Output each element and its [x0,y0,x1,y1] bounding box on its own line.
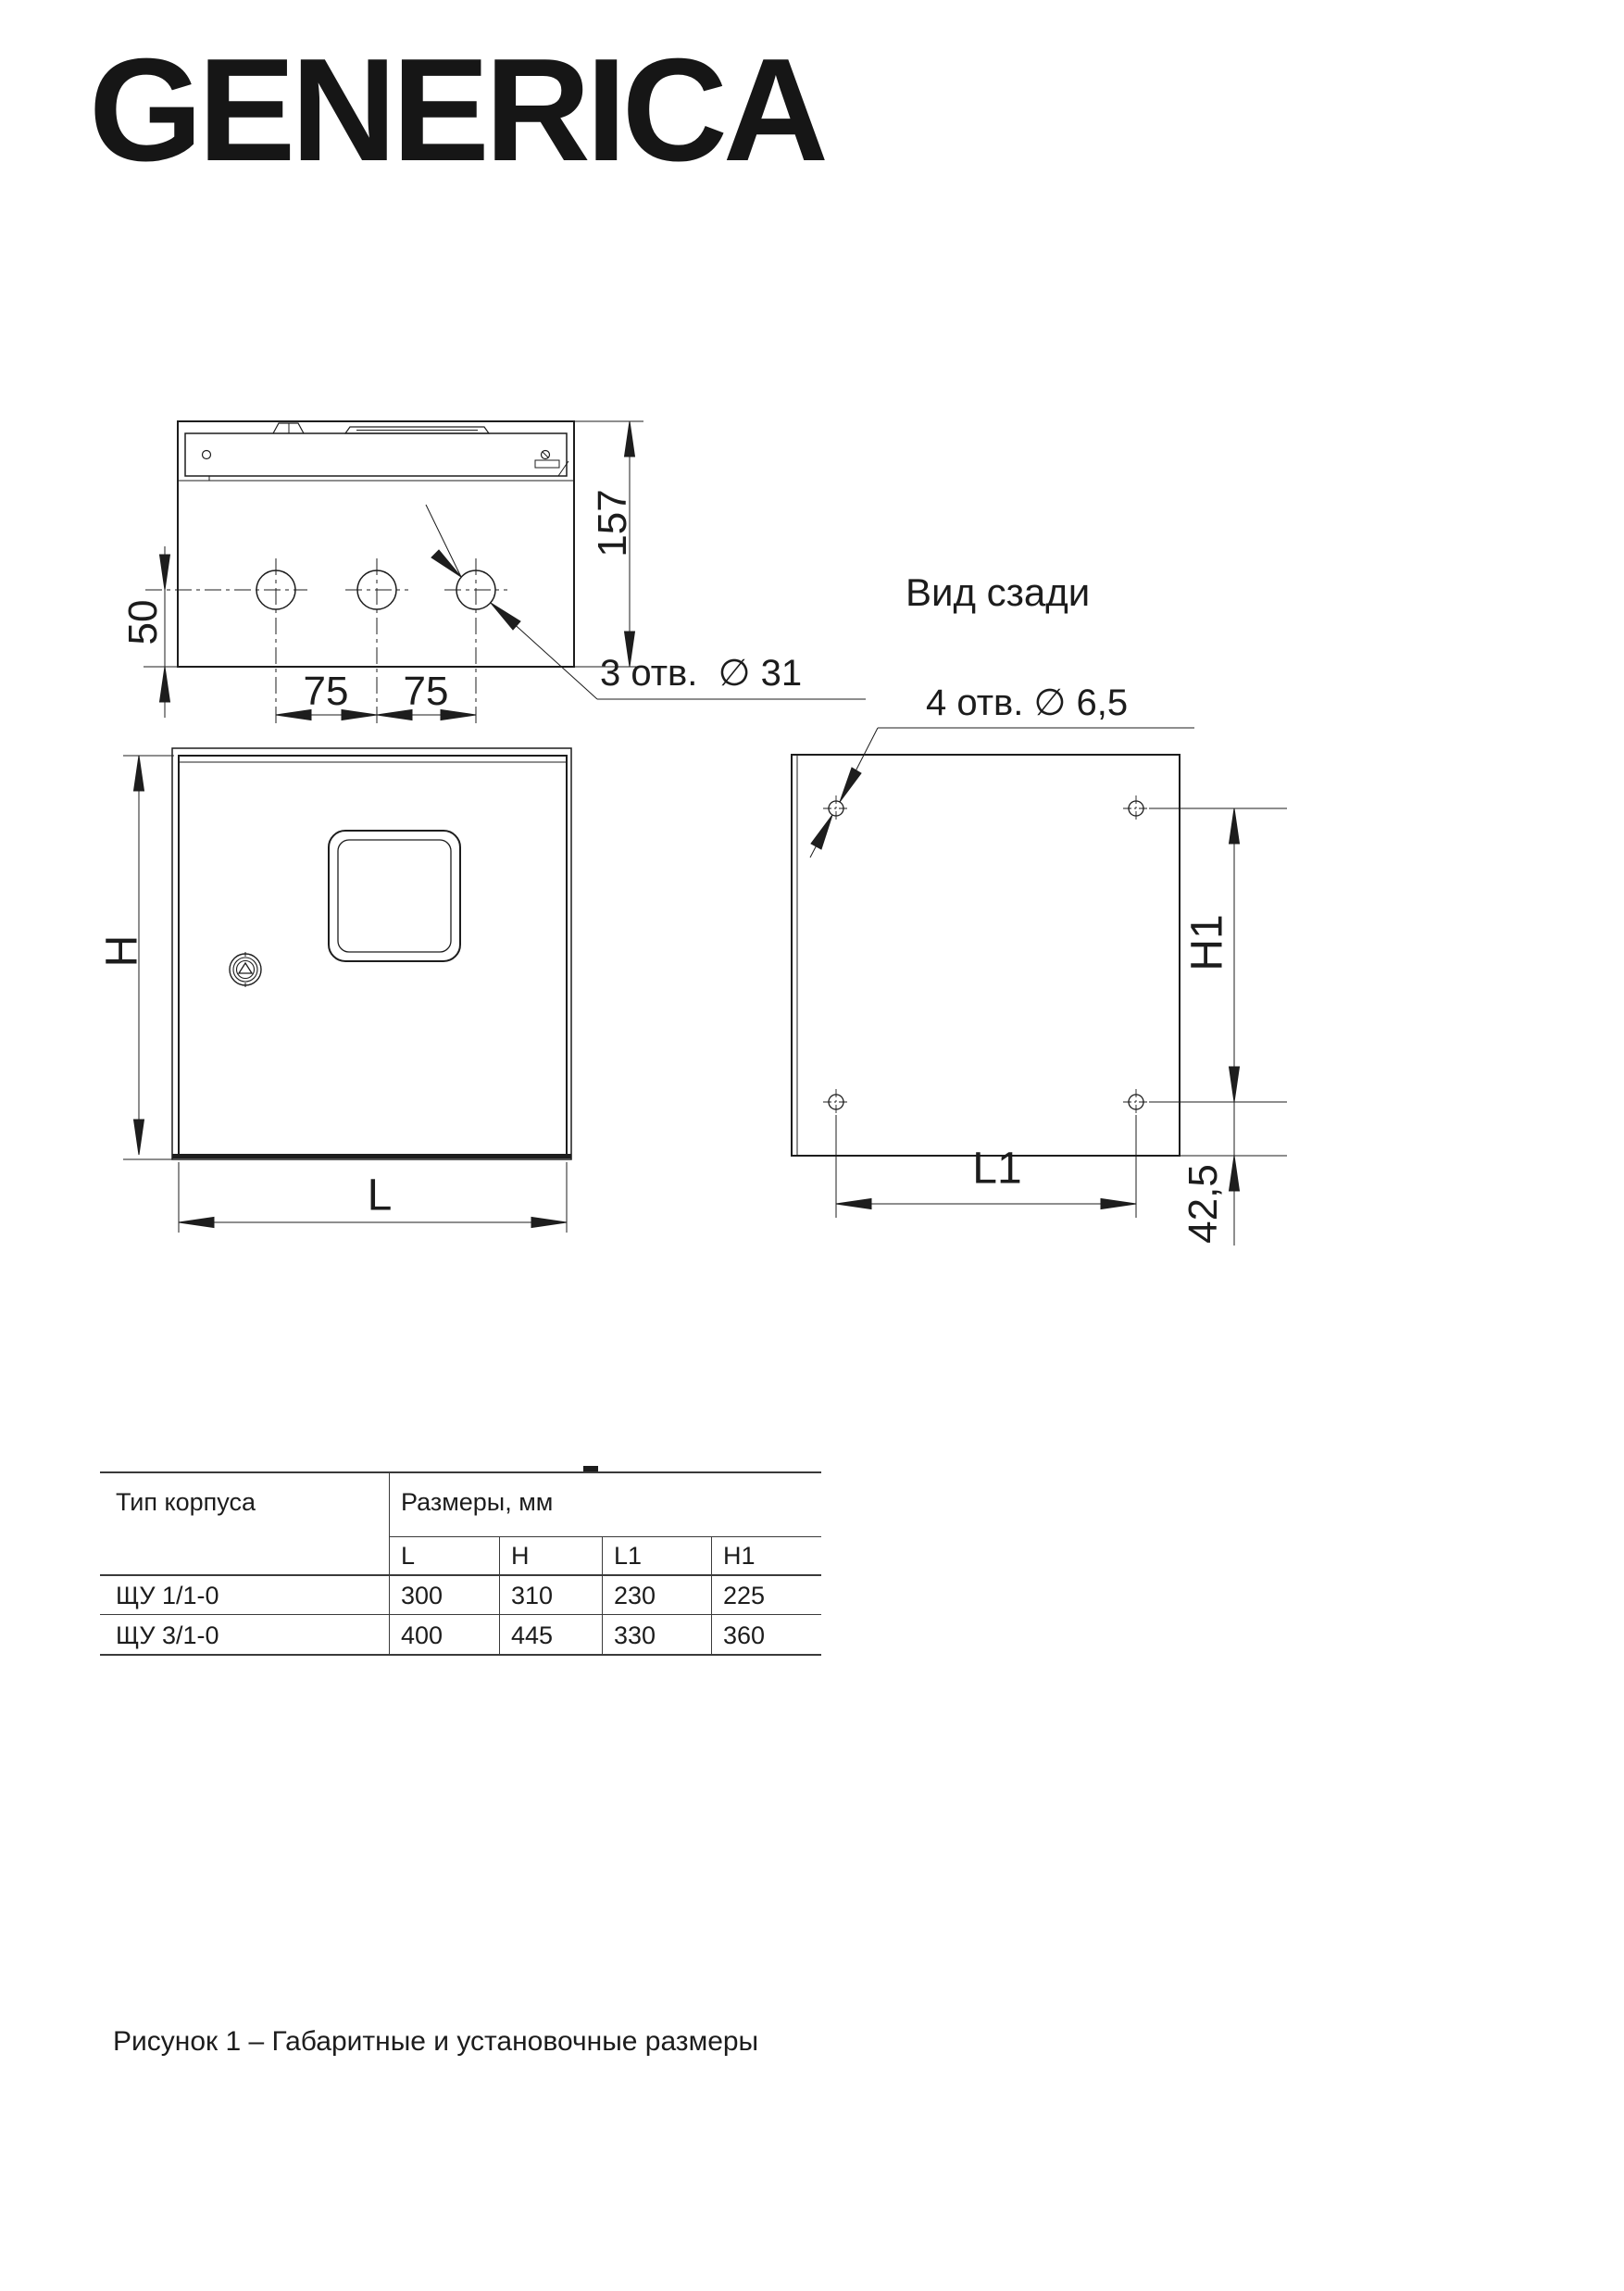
mounting-hole-bottom-left [823,1089,849,1115]
dimensions-table: Тип корпуса Размеры, мм L H L1 H1 ЩУ 1/1… [100,1471,821,1656]
dim-label-L1: L1 [972,1144,1021,1195]
table-row-type: ЩУ 1/1-0 [116,1582,219,1610]
table-cell: 445 [511,1621,553,1650]
table-row-type: ЩУ 3/1-0 [116,1621,219,1650]
hinge-detail [535,460,559,468]
front-view-drawing [74,732,611,1269]
table-header-dims: Размеры, мм [401,1488,553,1517]
table-line [389,1473,390,1654]
dim-label-H: H [97,935,148,968]
table-cell: 310 [511,1582,553,1610]
bottom-edge [172,1154,571,1158]
holes-note-4: 4 отв. ∅ 6,5 [926,682,1128,724]
table-subheader-L: L [401,1542,415,1571]
table-line [602,1536,603,1654]
table-cell: 225 [723,1582,765,1610]
table-cell: 400 [401,1621,443,1650]
table-line [389,1536,821,1537]
dim-label-42-5: 42,5 [1181,1164,1227,1244]
holes-note-3: 3 отв. ∅ 31 [600,652,802,695]
rear-view-title: Вид сзади [906,570,1090,615]
dim-label-50: 50 [120,600,167,645]
top-view-outline [178,421,574,667]
mounting-hole-top-left [823,795,849,821]
mounting-hole-bottom-right [1123,1089,1149,1115]
mounting-hole-top-right [1123,795,1149,821]
dim-label-157: 157 [590,489,636,557]
figure-caption: Рисунок 1 – Габаритные и установочные ра… [113,2026,758,2058]
table-header-type: Тип корпуса [116,1488,256,1517]
dim-42-5 [1230,1102,1240,1246]
door-lock [230,952,261,987]
table-line [499,1536,500,1654]
table-line [100,1614,821,1615]
brand-logo: GENERICA [89,37,824,183]
door-window [329,831,460,961]
dim-label-75-right: 75 [404,669,449,715]
front-outline [172,748,571,1159]
screw-left [203,451,211,459]
table-subheader-L1: L1 [614,1542,642,1571]
dim-label-H1: H1 [1182,914,1233,970]
leader-4-holes [810,728,1194,858]
table-subheader-H1: H1 [723,1542,756,1571]
table-cell: 230 [614,1582,656,1610]
table-cell: 360 [723,1621,765,1650]
table-subheader-H: H [511,1542,530,1571]
table-line [100,1574,821,1576]
datasheet-page: GENERICA [0,0,1624,2291]
table-cell: 300 [401,1582,443,1610]
mounting-holes [823,795,1149,1115]
table-cell: 330 [614,1621,656,1650]
dim-label-L: L [368,1171,393,1221]
dim-label-75-left: 75 [304,669,349,715]
table-line [711,1536,712,1654]
